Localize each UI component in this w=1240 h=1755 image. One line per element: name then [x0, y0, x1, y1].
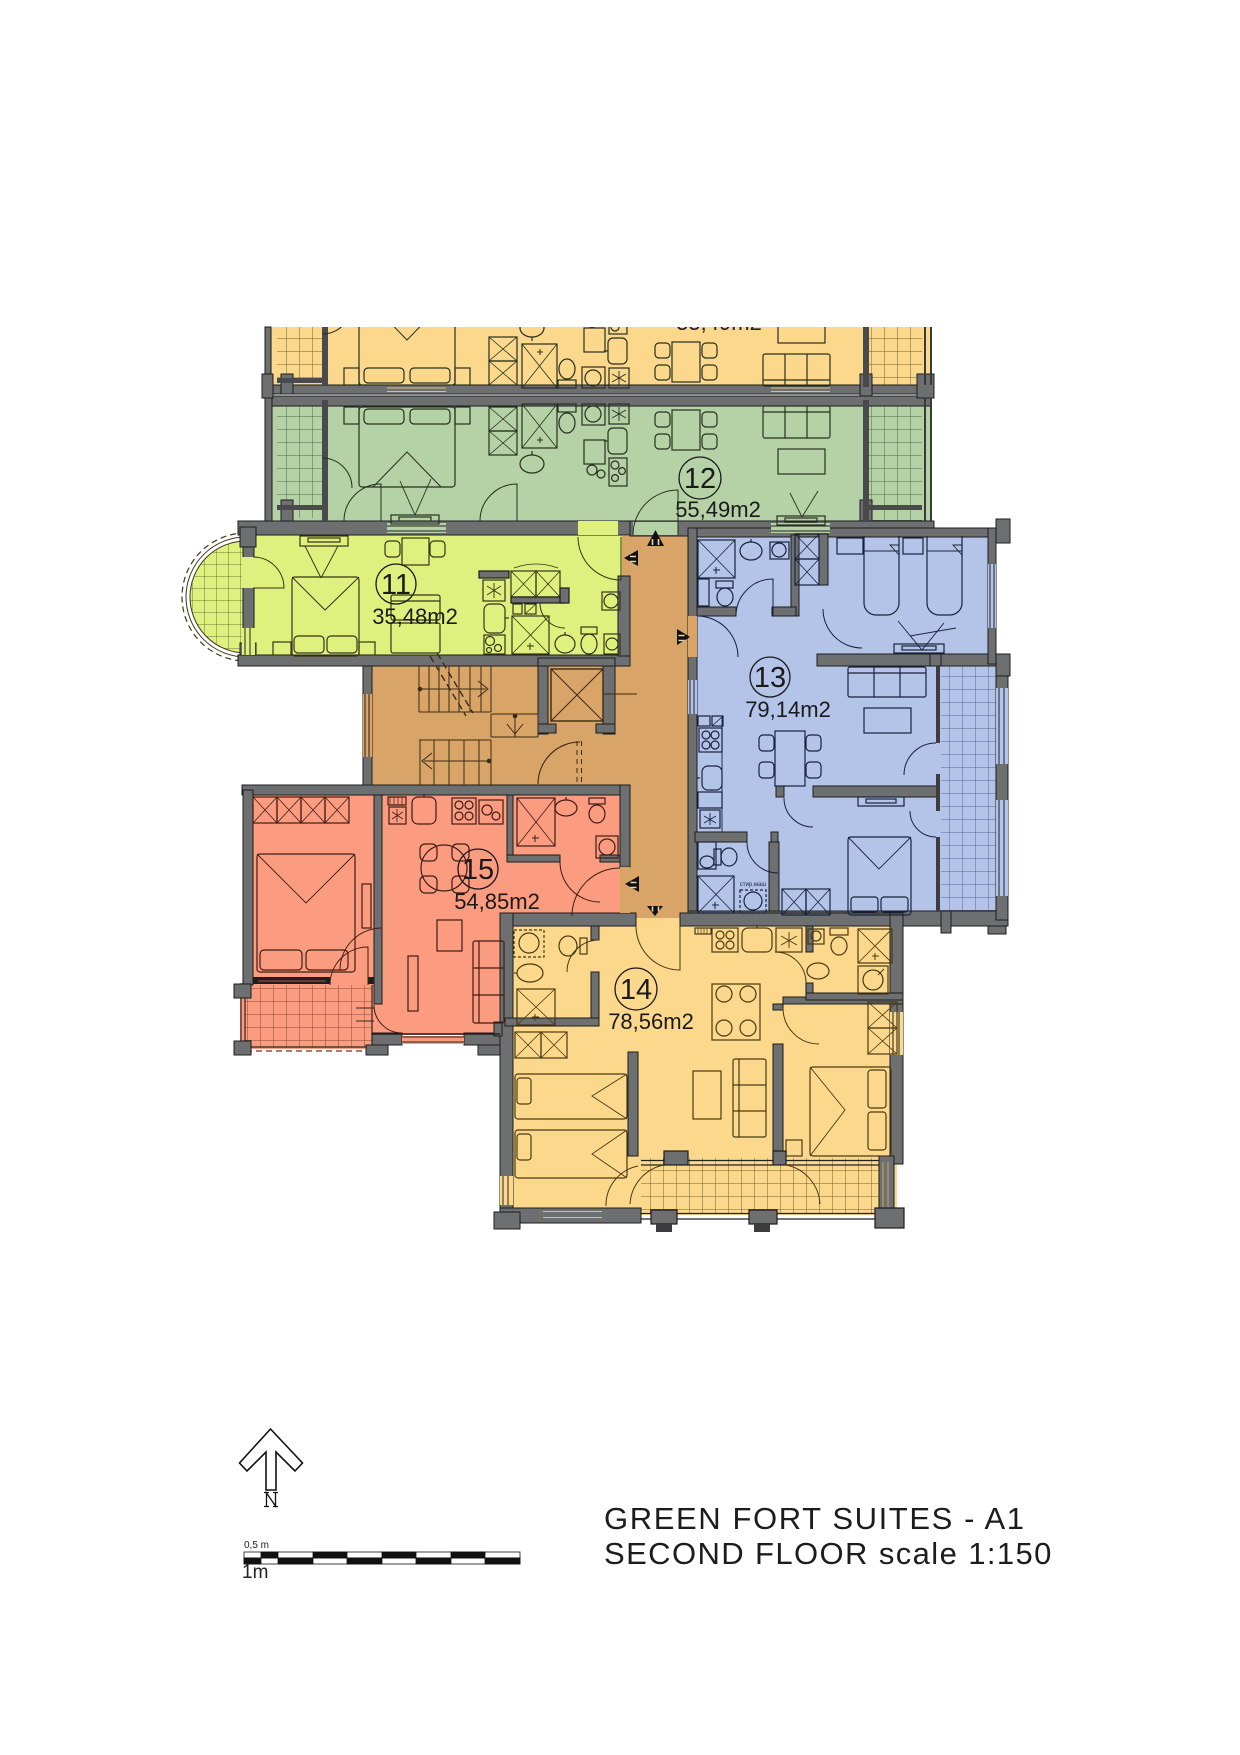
- svg-text:13: 13: [754, 662, 786, 694]
- svg-text:стир.маш: стир.маш: [740, 882, 767, 888]
- svg-text:SECOND FLOOR scale 1:150: SECOND FLOOR scale 1:150: [604, 1536, 1053, 1571]
- svg-text:11: 11: [381, 569, 411, 601]
- svg-text:79,14m2: 79,14m2: [745, 697, 831, 722]
- svg-text:1m: 1m: [242, 1562, 268, 1583]
- svg-text:78,56m2: 78,56m2: [608, 1009, 694, 1034]
- svg-text:14: 14: [620, 974, 652, 1006]
- svg-text:12: 12: [684, 463, 716, 495]
- svg-text:15: 15: [462, 854, 494, 886]
- svg-text:35,48m2: 35,48m2: [372, 604, 458, 629]
- svg-text:55,49m2: 55,49m2: [675, 497, 761, 522]
- svg-text:54,85m2: 54,85m2: [454, 889, 540, 914]
- svg-text:GREEN FORT SUITES - A1: GREEN FORT SUITES - A1: [604, 1501, 1026, 1536]
- svg-text:0,5 m: 0,5 m: [244, 1540, 269, 1551]
